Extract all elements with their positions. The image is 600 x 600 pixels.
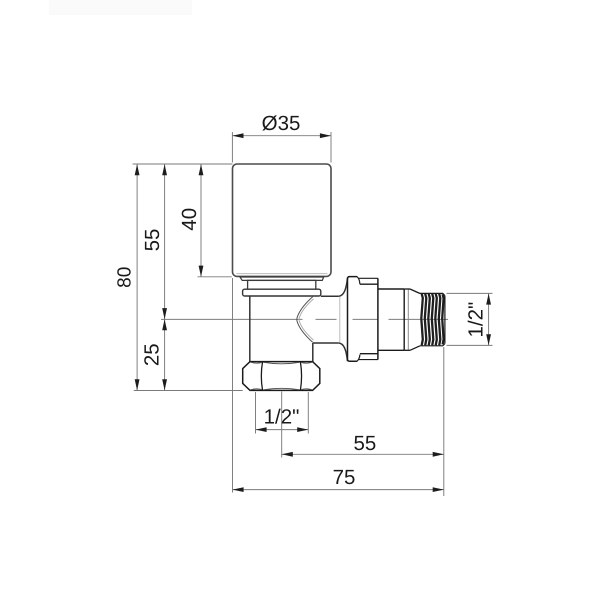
svg-text:25: 25 bbox=[140, 343, 163, 366]
svg-text:1/2": 1/2" bbox=[264, 406, 300, 429]
svg-text:75: 75 bbox=[333, 466, 356, 489]
svg-text:Ø35: Ø35 bbox=[262, 112, 301, 135]
svg-text:55: 55 bbox=[353, 432, 376, 455]
svg-text:55: 55 bbox=[141, 229, 164, 252]
svg-text:1/2": 1/2" bbox=[465, 302, 488, 338]
svg-text:80: 80 bbox=[115, 267, 136, 288]
svg-text:40: 40 bbox=[178, 208, 201, 231]
